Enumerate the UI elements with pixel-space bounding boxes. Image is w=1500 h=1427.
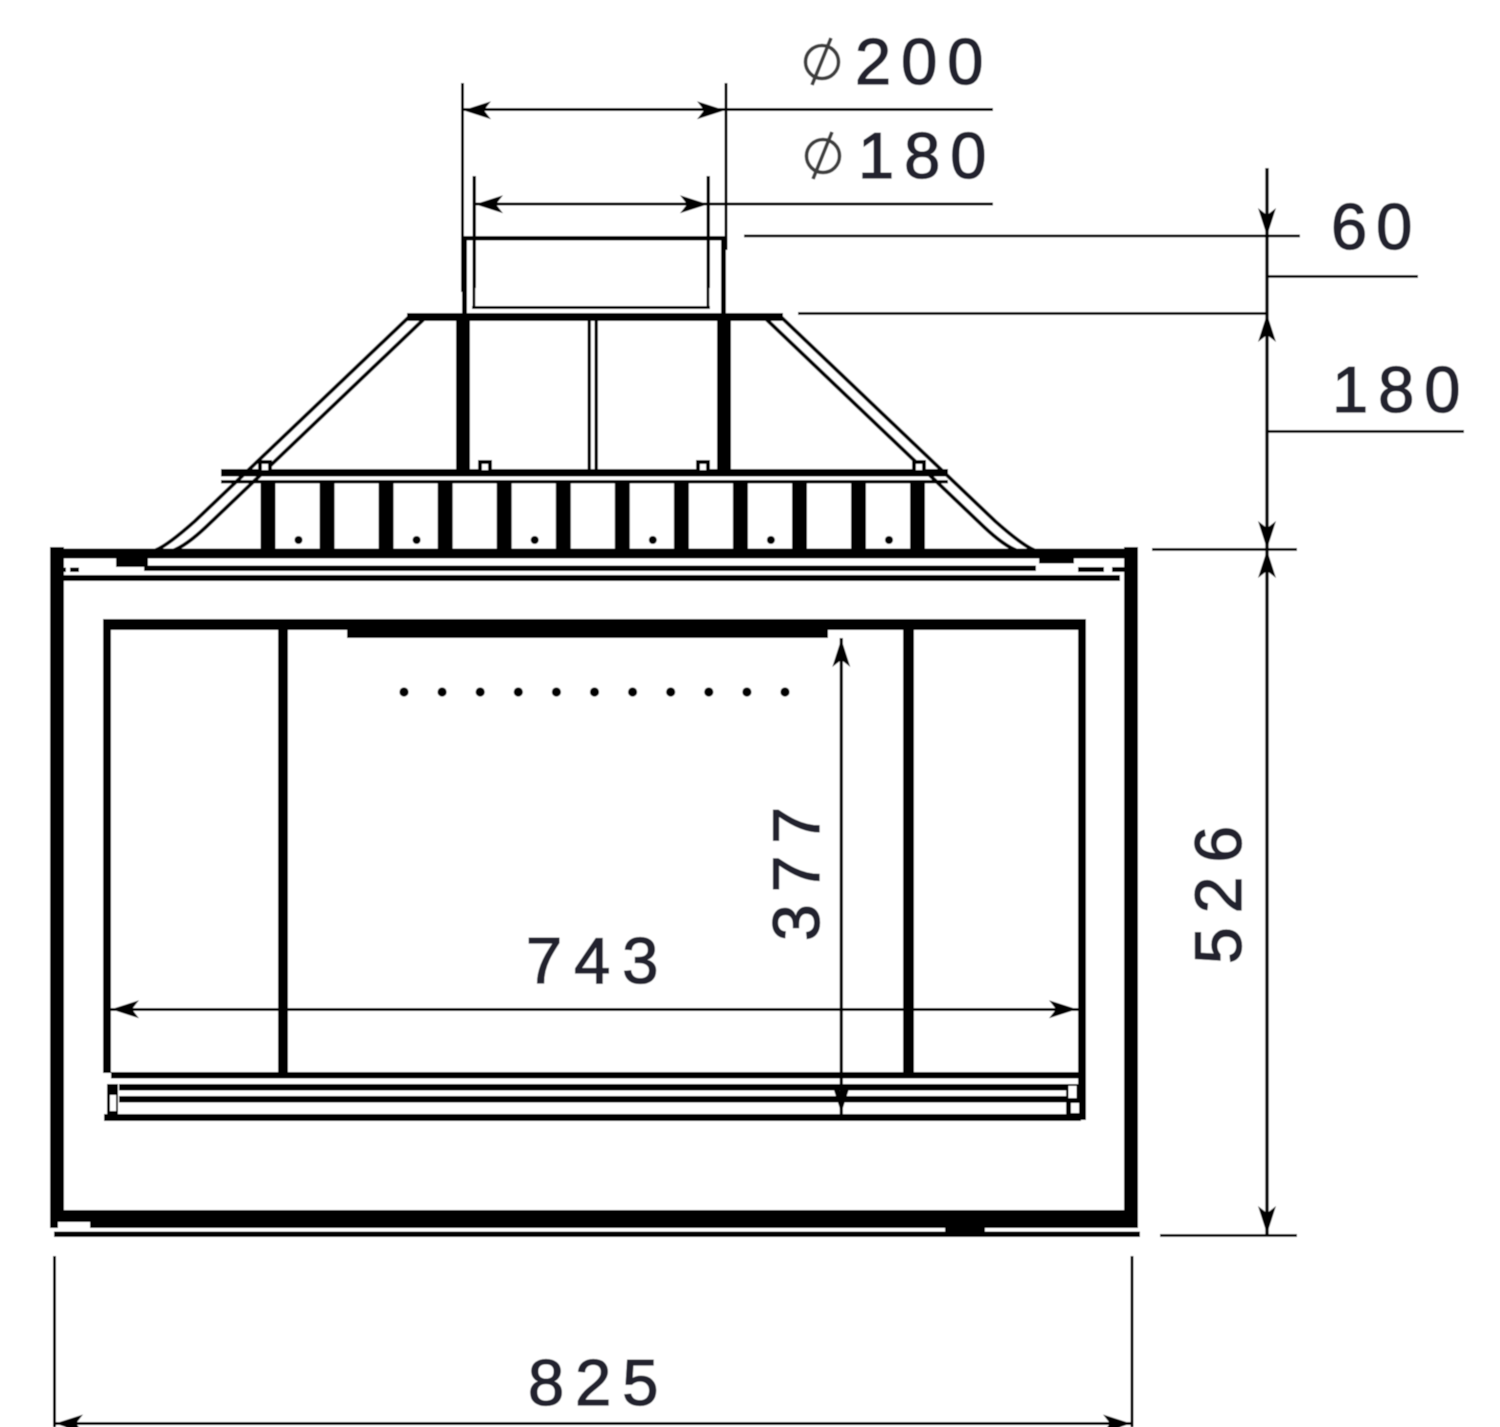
svg-text:200: 200: [855, 25, 993, 98]
svg-text:526: 526: [1181, 812, 1255, 964]
svg-text:60: 60: [1331, 190, 1421, 263]
svg-text:180: 180: [1332, 353, 1470, 426]
svg-text:180: 180: [858, 119, 996, 192]
svg-text:743: 743: [526, 924, 670, 997]
svg-text:377: 377: [759, 795, 833, 941]
svg-text:825: 825: [528, 1346, 669, 1419]
